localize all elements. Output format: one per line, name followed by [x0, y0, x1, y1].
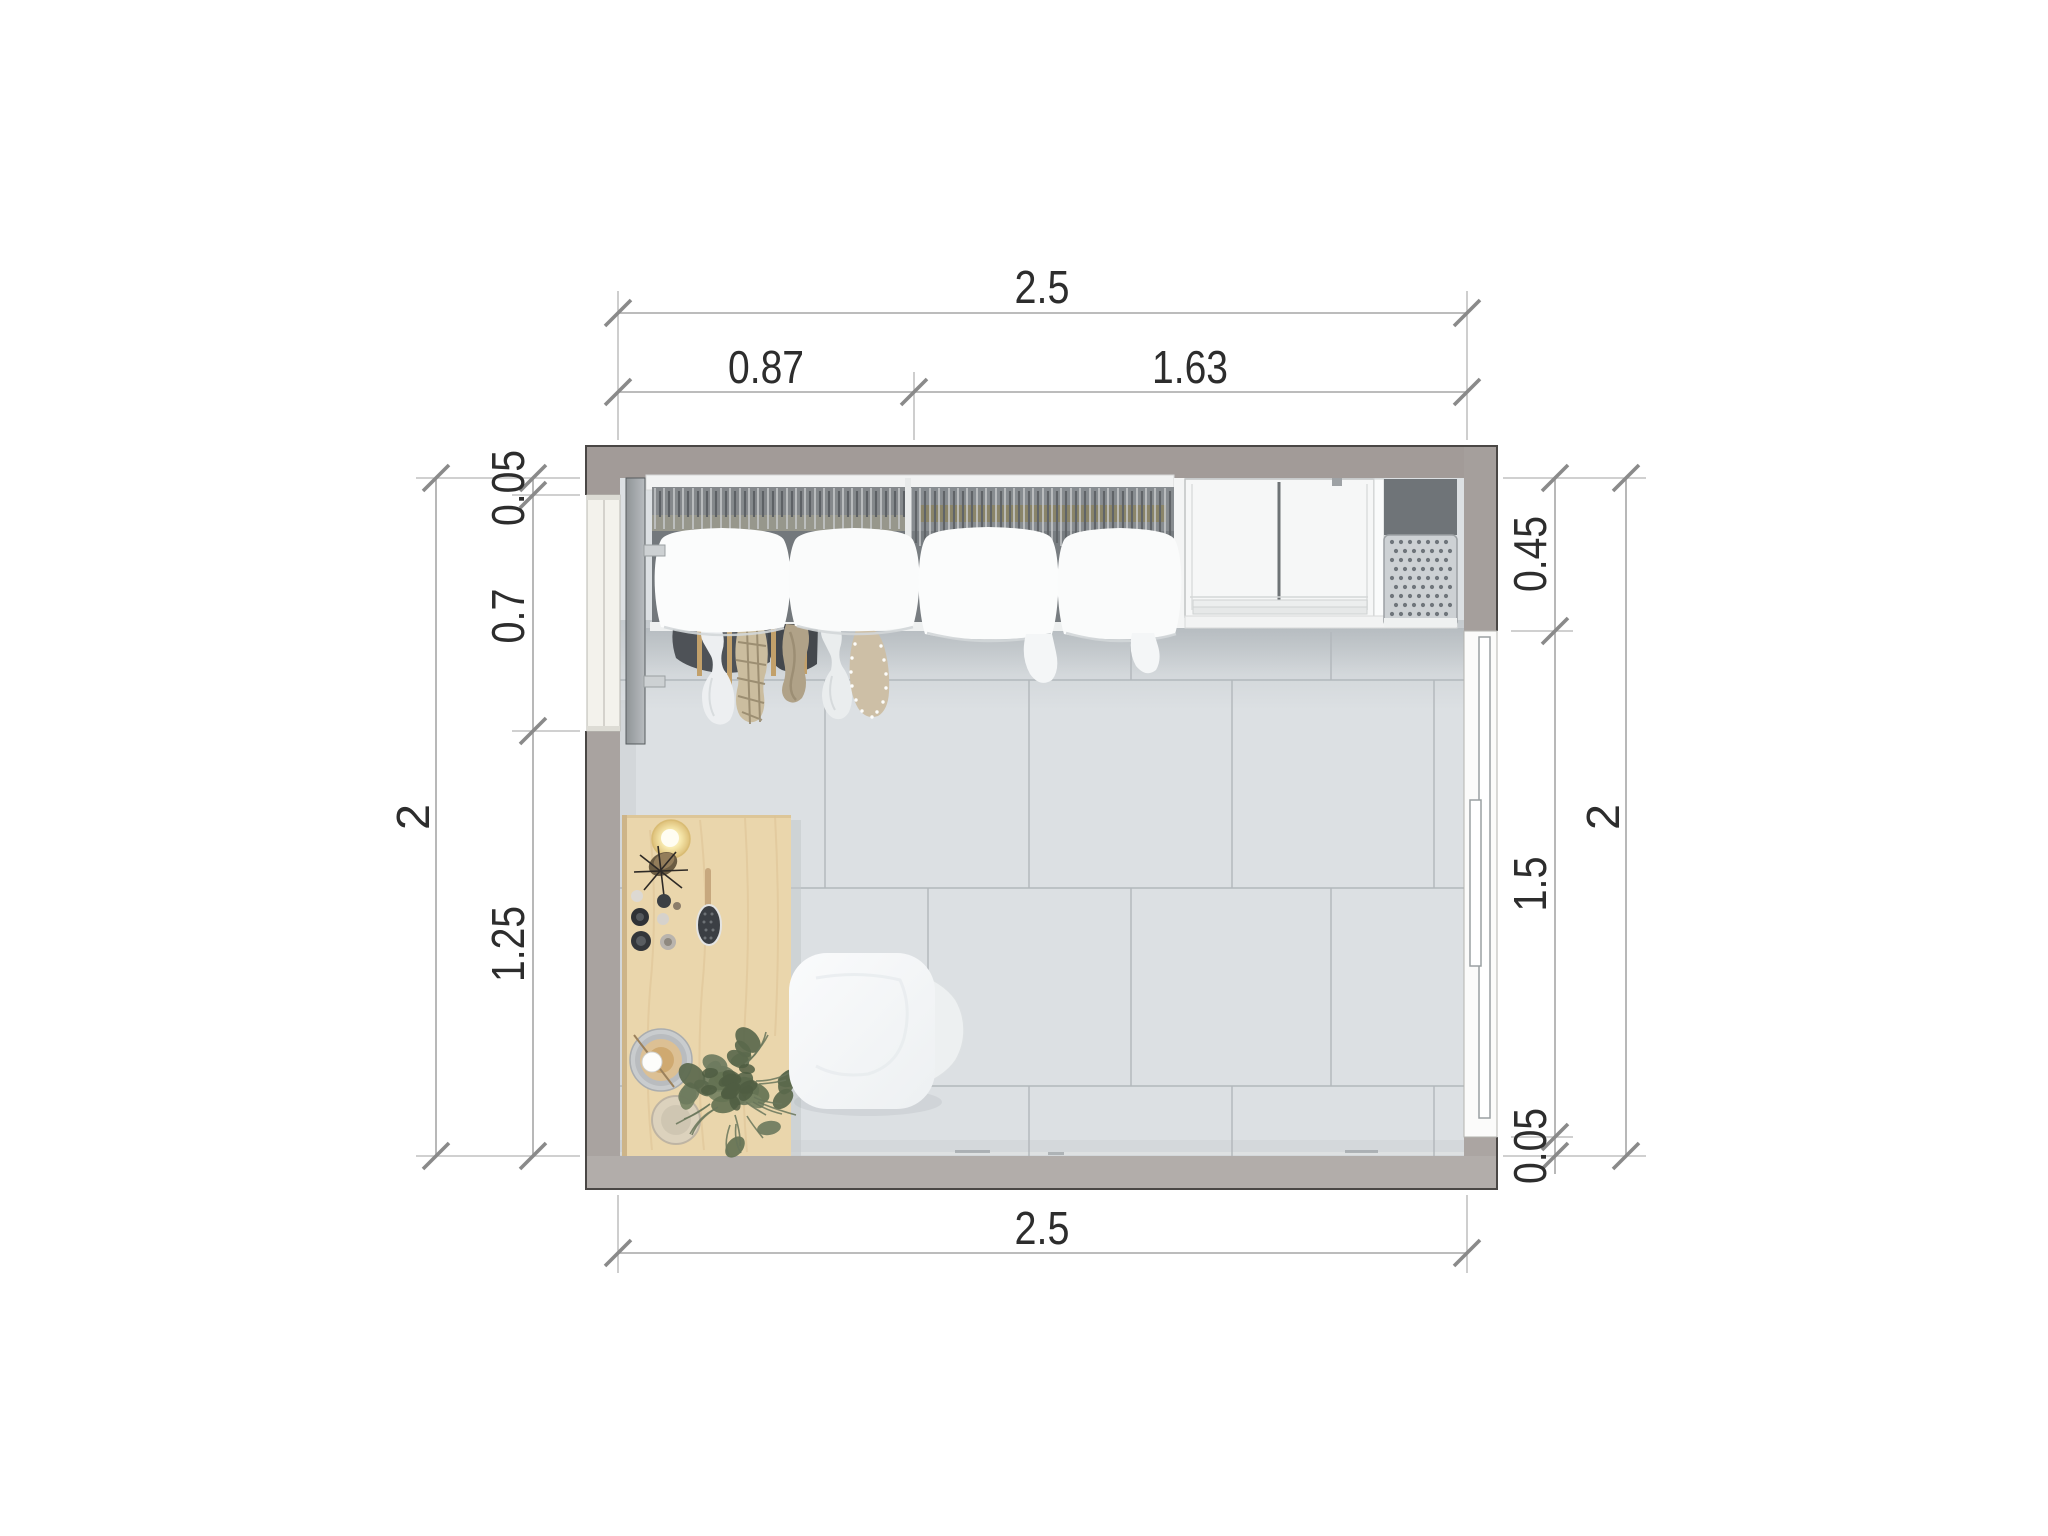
svg-text:2: 2 [387, 804, 439, 830]
svg-text:2.5: 2.5 [1015, 1202, 1070, 1254]
svg-text:0.7: 0.7 [482, 589, 534, 644]
svg-text:2.5: 2.5 [1015, 261, 1070, 313]
svg-text:0.45: 0.45 [1504, 516, 1556, 592]
svg-text:1.25: 1.25 [482, 906, 534, 982]
svg-text:0.05: 0.05 [482, 450, 534, 526]
svg-text:2: 2 [1577, 804, 1629, 830]
svg-text:0.05: 0.05 [1504, 1108, 1556, 1184]
svg-text:0.87: 0.87 [728, 341, 804, 393]
svg-text:1.63: 1.63 [1152, 341, 1228, 393]
svg-text:1.5: 1.5 [1504, 857, 1556, 912]
